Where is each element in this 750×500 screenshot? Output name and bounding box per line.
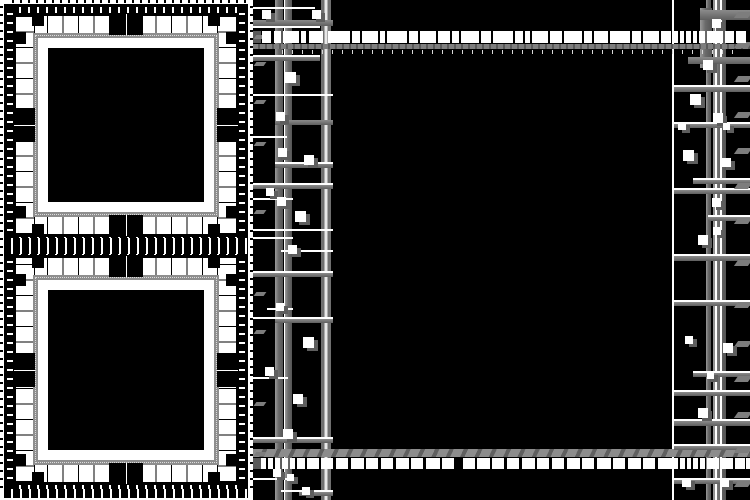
edge-notch-right	[217, 108, 238, 142]
corner-cell	[32, 258, 44, 268]
top-pad	[380, 31, 385, 43]
hline	[674, 254, 750, 256]
bottom-pad	[643, 458, 655, 469]
hline	[693, 178, 750, 180]
edge-bevel	[254, 402, 267, 406]
bottom-pad	[746, 458, 750, 469]
contact-square	[685, 336, 693, 344]
die-core	[48, 48, 204, 202]
edge-bevel	[734, 148, 750, 154]
contact-square	[712, 19, 721, 28]
contact-square	[698, 235, 708, 245]
contact-square	[276, 303, 284, 311]
contact-square	[302, 487, 310, 495]
seal-ticks-left	[7, 254, 13, 486]
top-pad	[584, 31, 592, 43]
corner-cell	[16, 32, 26, 44]
bottom-pad	[537, 458, 549, 469]
contact-square	[266, 188, 274, 196]
bottom-pad	[567, 458, 580, 469]
seal-ticks-right	[239, 254, 245, 486]
chip-die[interactable]	[4, 246, 248, 494]
bottom-pad	[522, 458, 535, 469]
top-pad	[328, 31, 350, 43]
hline	[253, 237, 293, 239]
top-pad	[550, 31, 562, 43]
edge-bevel	[254, 142, 267, 146]
bottom-pad	[396, 458, 409, 469]
contact-square	[713, 113, 723, 123]
top-pad	[661, 31, 671, 43]
contact-square	[265, 367, 274, 376]
corner-cell	[32, 16, 44, 26]
contact-square	[293, 394, 303, 404]
edge-bevel	[254, 100, 267, 104]
bottom-pad	[700, 458, 705, 469]
contact-square	[304, 155, 314, 165]
hline	[253, 136, 287, 138]
top-pad	[452, 31, 459, 43]
edge-bevel	[734, 260, 750, 266]
hline	[708, 215, 750, 217]
hline	[253, 183, 333, 185]
corner-cell	[208, 472, 220, 482]
corner-cell	[226, 274, 236, 286]
contact-square	[278, 148, 287, 157]
bottom-pad	[707, 458, 719, 469]
bottom-pad	[477, 458, 490, 469]
top-pad	[301, 31, 306, 43]
edge-notch-bottom	[109, 463, 143, 484]
top-pad	[673, 31, 678, 43]
top-pad	[686, 31, 691, 43]
bottom-pad	[552, 458, 564, 469]
edge-bevel	[254, 62, 267, 66]
gray-bar	[253, 185, 333, 189]
corner-cell	[208, 16, 220, 26]
corner-cell	[16, 274, 26, 286]
top-pad	[387, 31, 407, 43]
contact-square	[678, 122, 686, 130]
dash-row-top	[6, 0, 246, 3]
top-pad	[274, 31, 281, 43]
contact-square	[722, 158, 731, 167]
contact-square	[295, 211, 306, 222]
top-pad	[461, 31, 479, 43]
bottom-rail	[253, 449, 750, 457]
hline	[674, 444, 750, 446]
bottom-pad	[366, 458, 378, 469]
bottom-pad	[336, 458, 348, 469]
bottom-pad	[658, 458, 672, 469]
contact-square	[707, 372, 714, 379]
hline	[253, 26, 320, 28]
gray-bar	[674, 190, 750, 194]
top-pad	[610, 31, 630, 43]
corner-cell	[16, 206, 26, 218]
contact-square	[276, 112, 285, 121]
edge-bevel	[734, 376, 750, 382]
bottom-pad	[628, 458, 641, 469]
die-overview-panel[interactable]	[0, 0, 253, 500]
corner-cell	[32, 472, 44, 482]
bottom-pad	[582, 458, 594, 469]
contact-square	[285, 72, 296, 83]
contact-square	[712, 198, 721, 207]
bottom-pad	[261, 458, 266, 469]
edge-bevel	[734, 302, 750, 308]
hline	[674, 390, 750, 392]
bottom-pad	[307, 458, 319, 469]
contact-square	[273, 469, 281, 477]
hline	[253, 198, 293, 200]
bottom-pad	[613, 458, 625, 469]
edge-bevel	[734, 112, 750, 118]
corner-cell	[226, 454, 236, 466]
tick-strip	[273, 50, 733, 54]
hline	[253, 229, 333, 231]
hline	[253, 437, 333, 439]
hline	[674, 419, 750, 421]
top-pad	[438, 31, 450, 43]
contact-square	[287, 474, 294, 481]
inter-die-tick-band	[4, 238, 248, 254]
die-core	[48, 290, 204, 450]
gray-bar	[253, 273, 333, 277]
contact-square	[690, 94, 701, 105]
bottom-tick-band	[4, 489, 248, 498]
contact-square	[713, 227, 721, 235]
top-pad	[693, 31, 697, 43]
edge-bevel	[734, 447, 750, 453]
top-pad	[532, 31, 548, 43]
contact-square	[283, 429, 293, 439]
edge-notch-left	[14, 108, 35, 142]
edge-notch-right	[217, 353, 238, 387]
contact-square	[720, 478, 729, 487]
top-pad	[699, 31, 705, 43]
top-pad	[643, 31, 659, 43]
top-pad	[515, 31, 523, 43]
edge-notch-left	[14, 353, 35, 387]
dash-col-left	[0, 6, 3, 494]
hline	[253, 7, 315, 9]
edge-bevel	[734, 341, 750, 347]
die-detail-panel[interactable]	[253, 0, 750, 500]
edge-bevel	[734, 412, 750, 418]
edge-bevel	[734, 183, 750, 189]
gray-bar	[674, 87, 750, 92]
bottom-pad	[426, 458, 440, 469]
contact-square	[277, 197, 286, 206]
contact-square	[723, 343, 733, 353]
top-pad	[309, 31, 323, 43]
edge-bevel	[254, 330, 267, 334]
bottom-pad	[268, 458, 273, 469]
bottom-pad	[442, 458, 454, 469]
bottom-pad	[463, 458, 475, 469]
top-pad	[493, 31, 513, 43]
top-pad	[481, 31, 491, 43]
gray-bar	[674, 421, 750, 426]
bottom-pad	[282, 458, 288, 469]
edge-bevel	[734, 12, 750, 18]
edge-bevel	[254, 292, 267, 296]
edge-bevel	[734, 218, 750, 224]
bottom-pad	[687, 458, 691, 469]
contact-square	[723, 123, 730, 130]
top-rail	[253, 44, 750, 49]
corner-cell	[32, 224, 44, 234]
edge-notch-top	[109, 256, 143, 277]
contact-square	[683, 150, 694, 161]
top-pad	[680, 31, 684, 43]
corner-cell	[226, 206, 236, 218]
edge-notch-bottom	[109, 215, 143, 236]
edge-bevel	[734, 76, 750, 82]
top-pad	[594, 31, 608, 43]
bottom-pad	[693, 458, 698, 469]
pad-stub	[253, 458, 261, 469]
top-pad	[262, 31, 271, 43]
top-pad	[352, 31, 360, 43]
gray-bar	[253, 56, 320, 61]
bottom-pad	[680, 458, 685, 469]
top-pad	[632, 31, 641, 43]
bottom-pad	[674, 458, 678, 469]
bottom-pad	[492, 458, 504, 469]
gray-bar	[253, 439, 333, 443]
bottom-pad	[321, 458, 333, 469]
edge-notch-top	[109, 14, 143, 35]
seal-ticks-left	[7, 12, 13, 238]
bottom-pad	[351, 458, 364, 469]
gray-bar	[275, 319, 333, 323]
bottom-pad	[275, 458, 280, 469]
contact-square	[262, 10, 271, 19]
chip-die[interactable]	[4, 4, 248, 246]
gray-bar	[674, 392, 750, 396]
hline	[253, 55, 320, 57]
bottom-pad	[721, 458, 733, 469]
seal-ticks-right	[239, 12, 245, 238]
top-pad	[283, 31, 299, 43]
bottom-pad	[507, 458, 519, 469]
hline	[253, 377, 288, 379]
top-pad	[409, 31, 418, 43]
contact-square	[303, 337, 314, 348]
bottom-pad	[297, 458, 305, 469]
bottom-pad	[411, 458, 423, 469]
contact-square	[288, 245, 297, 254]
contact-square	[682, 478, 691, 487]
bottom-pad	[735, 458, 745, 469]
corner-cell	[208, 258, 220, 268]
corner-cell	[208, 224, 220, 234]
hline	[693, 371, 750, 373]
bottom-pad	[290, 458, 295, 469]
hline	[253, 94, 333, 96]
top-pad	[420, 31, 436, 43]
edge-bevel	[734, 481, 750, 487]
top-pad	[564, 31, 582, 43]
corner-cell	[226, 32, 236, 44]
top-pad	[362, 31, 378, 43]
bottom-pad	[381, 458, 393, 469]
hline	[674, 85, 750, 87]
corner-cell	[16, 454, 26, 466]
hline	[253, 317, 333, 319]
top-pad	[525, 31, 530, 43]
hline	[253, 271, 333, 273]
layout-viewport	[0, 0, 750, 500]
edge-bevel	[254, 210, 267, 214]
seal-ticks-top	[12, 7, 240, 13]
contact-square	[312, 10, 321, 19]
contact-square	[703, 60, 713, 70]
corner-bevel	[688, 57, 750, 64]
bottom-pad	[597, 458, 611, 469]
contact-square	[698, 408, 708, 418]
top-pad	[707, 31, 723, 43]
top-pad	[725, 31, 734, 43]
top-pad	[736, 31, 746, 43]
